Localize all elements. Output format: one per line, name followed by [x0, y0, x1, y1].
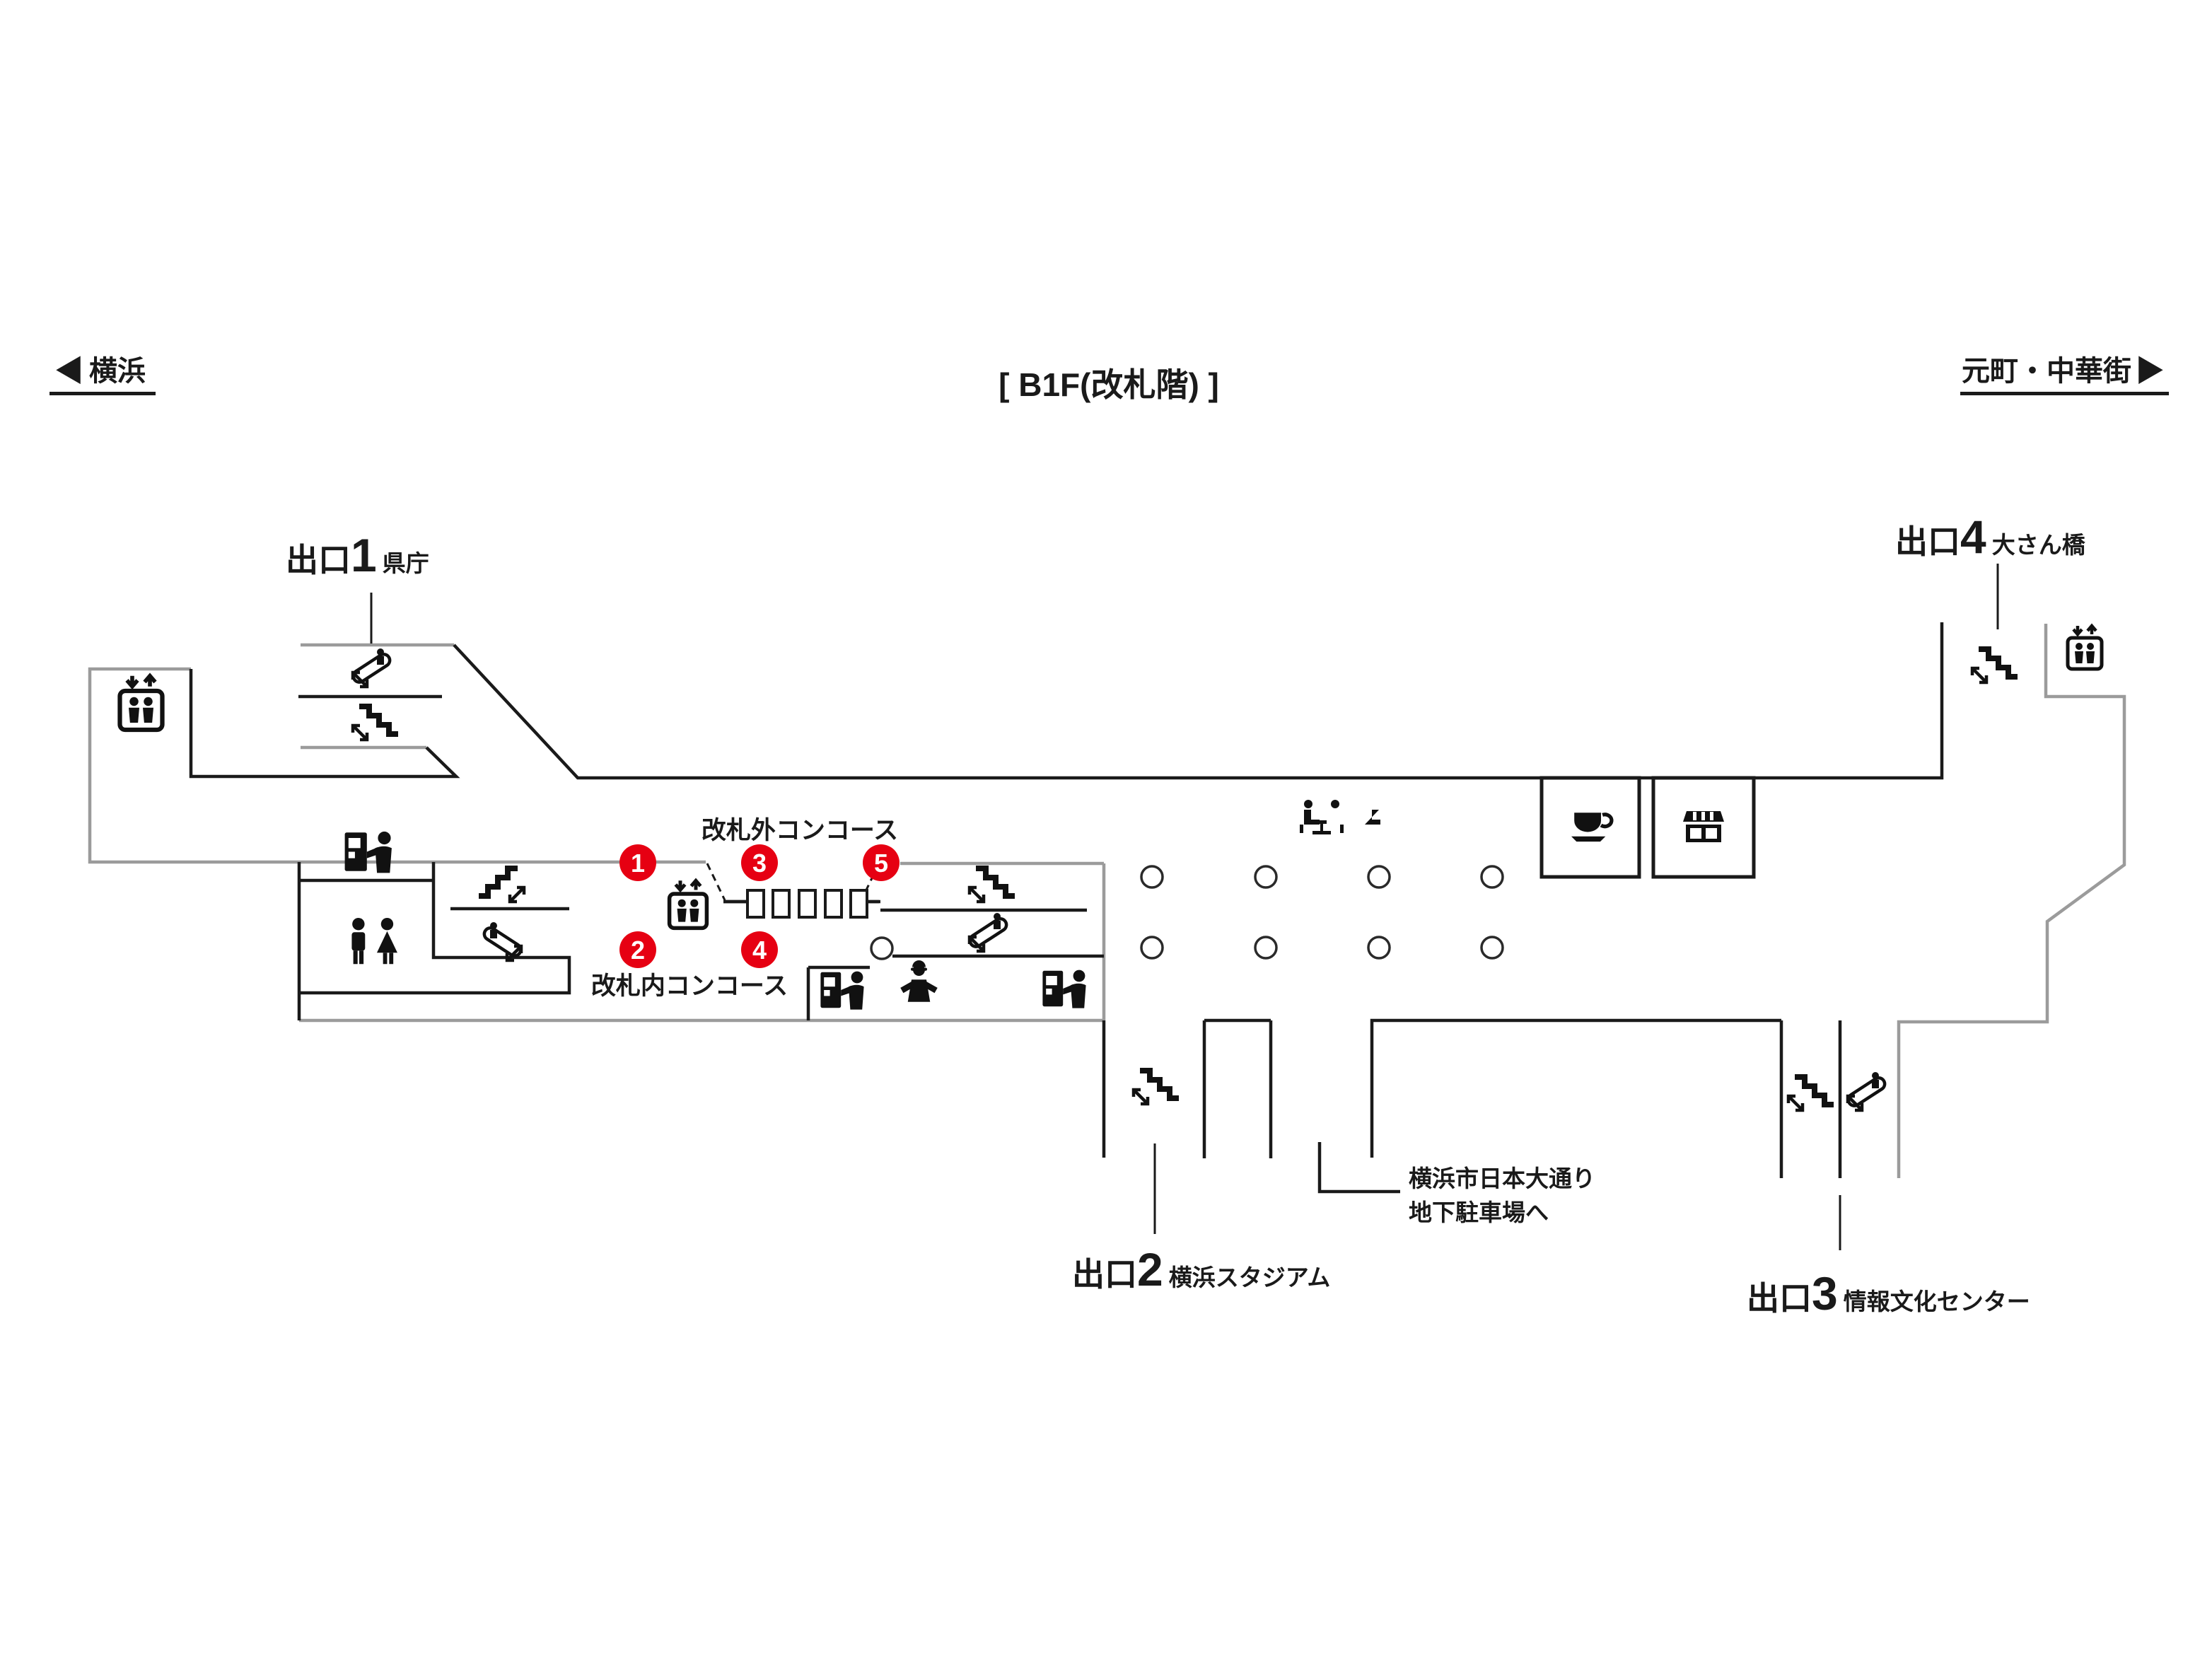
bench-icon	[1300, 800, 1380, 834]
nav-left: ◀横浜	[50, 356, 156, 395]
pillar	[1255, 866, 1276, 887]
outside-gates-label: 改札外コンコース	[702, 817, 898, 844]
pillar	[1255, 937, 1276, 958]
station-staff-icon	[900, 960, 938, 1002]
exit-1-label: 出口1県庁	[286, 529, 429, 581]
elevator-icon	[670, 880, 707, 928]
pillar	[1368, 937, 1390, 958]
stairs-icon	[1134, 1071, 1179, 1104]
nav-right-underline	[1960, 392, 2169, 395]
page-title: [ B1F(改札階) ]	[999, 366, 1219, 403]
parking-note-line1: 横浜市日本大通り	[1409, 1165, 1595, 1192]
ticket-gate	[747, 890, 764, 917]
ticket-gate	[825, 890, 842, 917]
stairs-icon	[479, 868, 524, 902]
inside-gates-label: 改札内コンコース	[591, 972, 788, 1000]
pillar	[1368, 866, 1390, 887]
ticket-gate	[799, 890, 815, 917]
escalator-icon	[351, 648, 392, 687]
pillar	[1482, 866, 1503, 887]
parking-note-line2: 地下駐車場へ	[1409, 1199, 1549, 1226]
point-number: 3	[752, 849, 767, 878]
point-number: 1	[631, 849, 645, 878]
labels: [ B1F(改札階) ] ◀横浜 元町・中華街▶ 出口1県庁 出口2横浜スタジア…	[50, 356, 2169, 1320]
nav-left-underline	[50, 392, 156, 395]
point-1: 1	[619, 844, 656, 881]
ticket-machine-icon	[345, 832, 392, 873]
nav-right: 元町・中華街▶	[1960, 356, 2169, 395]
facility-icons	[120, 626, 2102, 1110]
ticket-gate	[773, 890, 789, 917]
wall-black	[191, 622, 1942, 1192]
nav-left-label: ◀横浜	[55, 356, 146, 387]
exit-2-label: 出口2横浜スタジアム	[1072, 1243, 1330, 1296]
exit-3-label: 出口3情報文化センター	[1747, 1267, 2030, 1320]
floor-outline	[90, 622, 2124, 1192]
point-number: 2	[631, 936, 645, 965]
toilet-icon	[351, 918, 397, 964]
exit-leader-lines	[371, 564, 1998, 1250]
escalator-icon	[967, 913, 1008, 951]
nav-right-label: 元町・中華街▶	[1962, 356, 2164, 387]
ticket-gate	[851, 890, 867, 917]
pillars	[871, 866, 1503, 959]
ticket-gates	[723, 890, 879, 917]
ticket-machine-icon	[1042, 970, 1085, 1008]
pillar	[1141, 937, 1163, 958]
stairs-icon	[1972, 649, 2018, 682]
stairs-icon	[1788, 1077, 1834, 1110]
elevator-icon	[2068, 626, 2102, 669]
pillar	[1482, 937, 1503, 958]
shop-icon	[1683, 811, 1724, 842]
parking-note: 横浜市日本大通り 地下駐車場へ	[1409, 1165, 1595, 1226]
stairs-icon	[353, 706, 398, 740]
point-2: 2	[619, 931, 656, 968]
escalator-icon	[1846, 1072, 1887, 1110]
pillar	[1141, 866, 1163, 887]
point-number: 4	[752, 936, 767, 965]
pillar	[871, 938, 892, 959]
point-5: 5	[863, 844, 900, 881]
point-4: 4	[741, 931, 778, 968]
exit-4-label: 出口4大さん橋	[1895, 511, 2086, 563]
escalator-icon	[482, 922, 523, 960]
station-floor-map: 1 2 3 4 5 [ B1F(改札階) ] ◀横浜 元町・中華街▶	[0, 0, 2212, 1659]
elevator-icon	[120, 676, 163, 730]
ticket-machine-icon	[820, 972, 863, 1010]
point-number: 5	[874, 849, 888, 878]
stairs-icon	[970, 868, 1015, 902]
point-3: 3	[741, 844, 778, 881]
